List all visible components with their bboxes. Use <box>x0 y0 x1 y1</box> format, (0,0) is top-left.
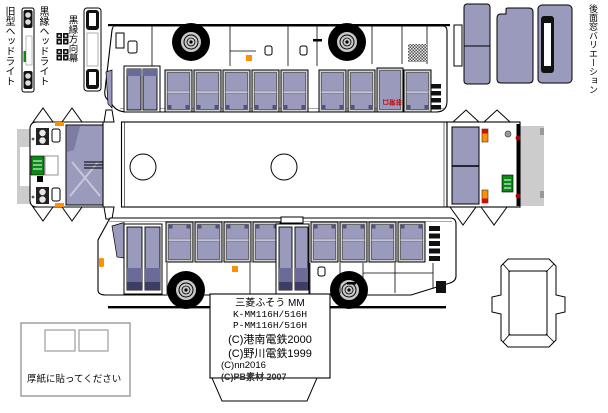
front-windshield <box>66 125 103 205</box>
lower-rear-bumper <box>436 281 446 293</box>
lower-orange-marker <box>232 266 238 272</box>
upper-front-sign-box <box>116 33 124 48</box>
upper-dash-detail <box>313 39 322 42</box>
front-headlight <box>36 187 49 204</box>
roof-vent <box>271 154 297 180</box>
rear-tail-light <box>482 190 488 203</box>
front-view <box>17 108 114 221</box>
rear-window-variation-parts <box>454 4 572 84</box>
credit-line: (C)野川電鉄1999 <box>211 348 329 362</box>
rear-tail-light <box>482 129 488 142</box>
upper-windshield-corner <box>106 70 112 108</box>
upper-rear-wheel <box>328 23 366 61</box>
upper-front-detail <box>128 41 137 53</box>
part-rear-window-with-sign <box>538 5 572 83</box>
part-rear-window-split <box>464 4 490 84</box>
credit-line: (C)nn2016 <box>211 361 329 372</box>
label-black-rim-headlight: 黒縁ヘッドライト <box>37 6 47 86</box>
model-code: P-MM116H/516H <box>211 321 329 332</box>
front-side-tab <box>17 186 30 204</box>
rear-round-light <box>516 136 521 141</box>
emergency-exit-label: 非常口 <box>380 98 402 108</box>
cardboard-slot <box>79 330 108 351</box>
lower-hatch-handle <box>318 267 325 276</box>
front-license-plate <box>37 176 43 182</box>
lower-dash-detail <box>347 282 356 285</box>
model-code: K-MM116H/516H <box>211 310 329 321</box>
front-mirror <box>52 129 60 142</box>
roof-vent <box>130 154 156 180</box>
front-destination-sign <box>31 156 44 175</box>
upper-orange-marker <box>246 55 252 61</box>
upper-front-door <box>124 66 160 112</box>
label-old-headlight: 旧型ヘッドライト <box>3 6 13 86</box>
lower-front-wheel <box>167 271 205 309</box>
rear-license-plate <box>502 175 513 192</box>
floor-box-part <box>492 259 565 347</box>
front-mirror <box>52 188 60 201</box>
upper-front-wheel <box>172 23 210 61</box>
spec-box-text: 三菱ふそう MM K-MM116H/516H P-MM116H/516H (C)… <box>211 297 329 382</box>
part-black-rim-destination-strip <box>84 8 101 91</box>
part-rear-pillar <box>454 25 462 66</box>
roof-top-view <box>122 122 448 207</box>
label-black-rim-destination: 黒縁方向幕 <box>67 15 77 63</box>
lower-front-door <box>124 224 162 294</box>
front-route-box <box>45 156 58 175</box>
lower-rear-wheel <box>330 271 368 309</box>
part-rear-window-plain <box>497 8 533 83</box>
label-rear-window-variation: 後面窓バリエーション <box>588 4 597 94</box>
upper-hatch-handle <box>300 46 307 55</box>
upper-hatch-handle <box>265 46 272 55</box>
upper-engine-grille <box>408 44 427 62</box>
papercraft-sheet: 旧型ヘッドライト 黒縁ヘッドライト 黒縁方向幕 後面窓バリエーション 非常口 三… <box>0 0 608 413</box>
part-old-headlight-strip <box>22 8 34 92</box>
rear-fuel-cap <box>505 131 511 137</box>
credit-line: (C)港南電鉄2000 <box>211 334 329 348</box>
rear-window <box>452 127 479 204</box>
credit-line: (C)PB素材 2007 <box>211 372 329 382</box>
rear-round-light <box>516 194 521 199</box>
cardboard-slot <box>45 330 75 351</box>
cardboard-box <box>21 323 130 396</box>
front-side-tab <box>17 129 30 147</box>
front-marker-lamp <box>55 122 64 126</box>
front-marker-lamp <box>55 203 64 207</box>
rear-view <box>447 110 544 225</box>
cardboard-instruction-label: 厚紙に貼ってください <box>27 371 121 385</box>
front-headlight <box>36 128 49 145</box>
lower-middle-door <box>276 217 309 294</box>
lower-front-marker <box>99 258 104 267</box>
